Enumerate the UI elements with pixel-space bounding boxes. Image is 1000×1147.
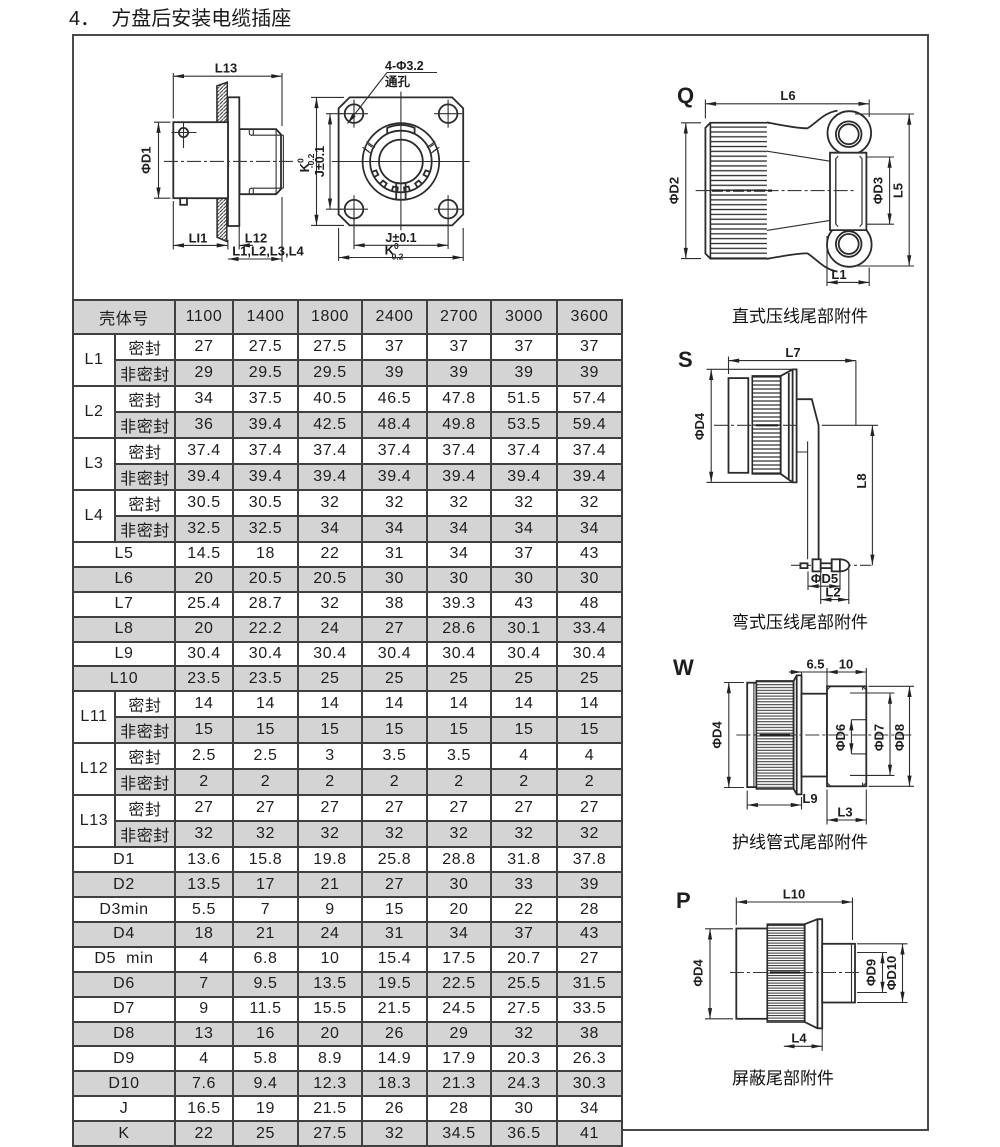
- svg-text:ΦD2: ΦD2: [667, 177, 682, 204]
- svg-text:ΦD3: ΦD3: [871, 177, 886, 204]
- svg-text:L9: L9: [802, 791, 817, 806]
- svg-text:6.5: 6.5: [806, 657, 824, 672]
- svg-text:L1,L2,L3,L4: L1,L2,L3,L4: [232, 244, 304, 259]
- svg-text:L2: L2: [825, 585, 840, 600]
- svg-text:J±0.1: J±0.1: [313, 146, 327, 177]
- svg-text:L8: L8: [854, 473, 869, 488]
- svg-text:Q: Q: [677, 83, 694, 108]
- svg-text:ΦD7: ΦD7: [872, 724, 887, 751]
- svg-text:ΦD4: ΦD4: [692, 412, 707, 440]
- svg-text:L10: L10: [783, 887, 805, 902]
- svg-text:P: P: [676, 888, 691, 913]
- svg-text:ΦD8: ΦD8: [892, 724, 907, 751]
- svg-text:ΦD10: ΦD10: [884, 956, 899, 991]
- svg-text:ΦD4: ΦD4: [709, 721, 724, 749]
- svg-text:10: 10: [839, 657, 853, 672]
- svg-text:L7: L7: [785, 345, 800, 360]
- svg-text:L1: L1: [831, 267, 846, 282]
- svg-text:S: S: [678, 347, 693, 372]
- svg-text:LI1: LI1: [189, 231, 208, 246]
- svg-text:L3: L3: [837, 805, 852, 820]
- svg-text:L5: L5: [891, 183, 906, 198]
- svg-text:W: W: [673, 655, 694, 680]
- svg-text:ΦD6: ΦD6: [833, 724, 848, 751]
- svg-text:L13: L13: [215, 61, 237, 76]
- svg-text:ΦD1: ΦD1: [139, 147, 154, 174]
- svg-text:ΦD9: ΦD9: [864, 959, 879, 986]
- svg-text:L4: L4: [791, 1031, 807, 1046]
- svg-text:ΦD4: ΦD4: [691, 959, 706, 987]
- svg-text:4-Φ3.2: 4-Φ3.2: [385, 59, 424, 73]
- svg-text:通孔: 通孔: [385, 74, 411, 89]
- svg-text:L6: L6: [780, 88, 795, 103]
